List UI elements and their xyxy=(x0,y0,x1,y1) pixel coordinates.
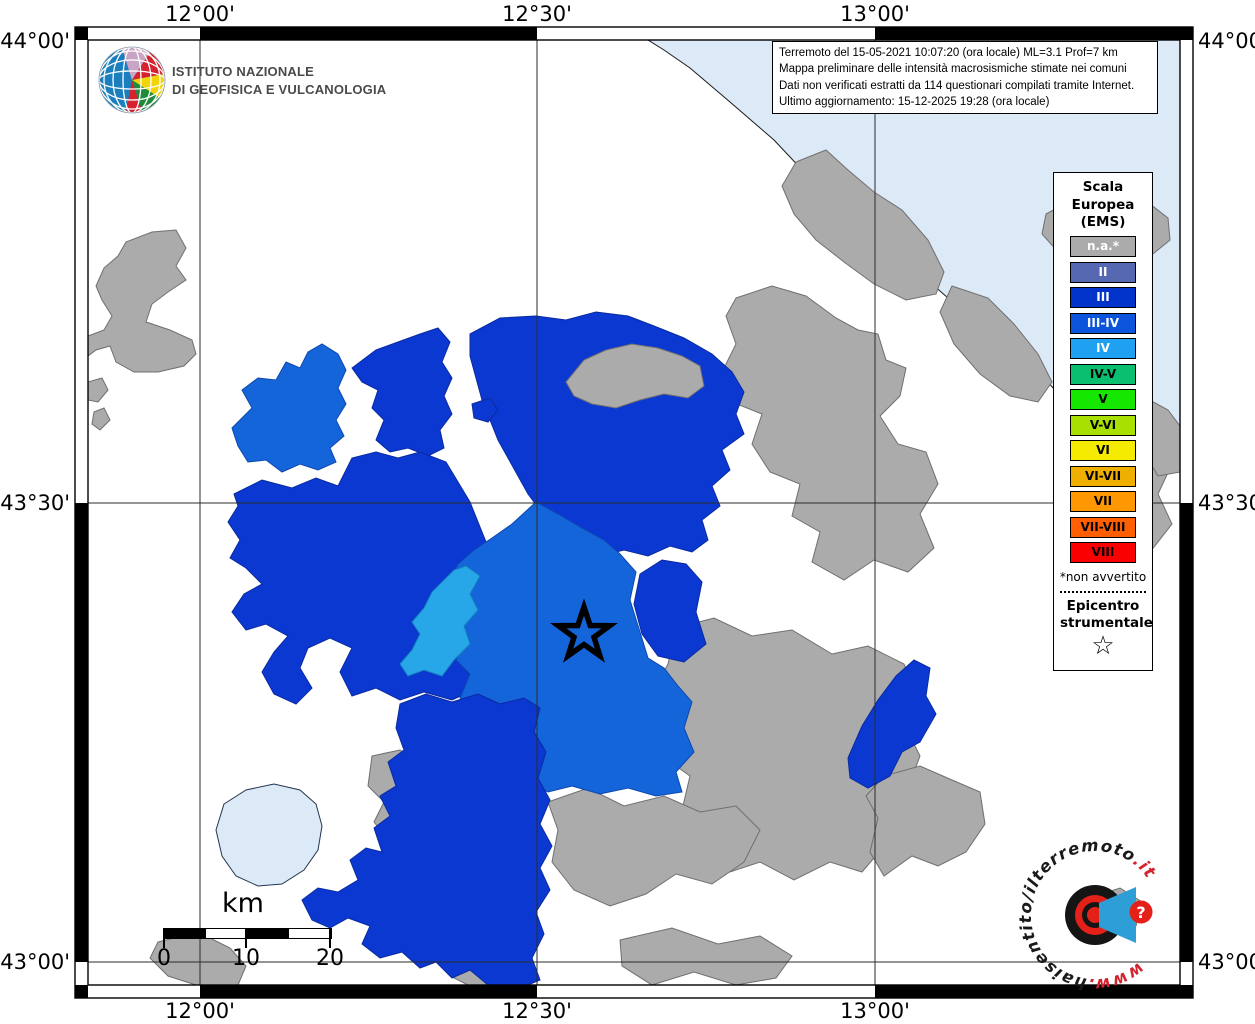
legend-swatch-IV-V: IV-V xyxy=(1070,364,1136,385)
legend-epicenter-section: Epicentro strumentale ☆ xyxy=(1060,591,1146,662)
axis-label-top-2: 12°30' xyxy=(502,2,572,26)
region-gray-right-big xyxy=(722,286,938,580)
axis-label-bottom-2: 12°30' xyxy=(502,999,572,1023)
region-gray-se xyxy=(866,766,985,876)
axis-label-top-3: 13°00' xyxy=(840,2,910,26)
legend-swatch-VIII: VIII xyxy=(1070,542,1136,563)
event-info-box: Terremoto del 15-05-2021 10:07:20 (ora l… xyxy=(772,41,1158,114)
legend-swatch-V-VI: V-VI xyxy=(1070,415,1136,436)
ingv-name-line2: DI GEOFISICA E VULCANOLOGIA xyxy=(172,81,386,99)
legend-swatch-II: II xyxy=(1070,262,1136,283)
ingv-name: ISTITUTO NAZIONALE DI GEOFISICA E VULCAN… xyxy=(172,63,386,98)
map-regions xyxy=(88,40,1180,985)
legend-swatch-III: III xyxy=(1070,287,1136,308)
legend-swatch-VI: VI xyxy=(1070,440,1136,461)
event-info-line1: Terremoto del 15-05-2021 10:07:20 (ora l… xyxy=(779,45,1151,61)
epicenter-star-icon: ☆ xyxy=(1060,632,1146,662)
legend-swatch-VI-VII: VI-VII xyxy=(1070,466,1136,487)
legend-swatch-VII-VIII: VII-VIII xyxy=(1070,517,1136,538)
axis-label-left-1: 44°00' xyxy=(0,29,70,53)
region-gray-islet-2 xyxy=(92,408,110,430)
region-blue-center-north xyxy=(470,312,744,556)
axis-label-right-3: 43°00' xyxy=(1198,950,1255,974)
legend-items: n.a.*IIIIIIII-IVIVIV-VVV-VIVIVI-VIIVIIVI… xyxy=(1054,236,1152,563)
scalebar-tick-0 xyxy=(163,928,165,948)
scalebar-num-20: 20 xyxy=(316,946,344,971)
legend-swatch-VII: VII xyxy=(1070,491,1136,512)
axis-label-left-3: 43°00' xyxy=(0,950,70,974)
ems-legend: Scala Europea (EMS) n.a.*IIIIIIII-IVIVIV… xyxy=(1053,172,1153,671)
scalebar xyxy=(163,928,332,939)
question-mark: ? xyxy=(1136,903,1145,922)
legend-swatch-n.a.*: n.a.* xyxy=(1070,236,1136,257)
region-blue-south-big xyxy=(302,694,552,985)
region-blue-tall-nw xyxy=(352,328,452,456)
region-medblue-nw xyxy=(232,344,346,472)
scalebar-num-10: 10 xyxy=(232,946,260,971)
legend-swatch-V: V xyxy=(1070,389,1136,410)
region-lake-trasimeno xyxy=(216,784,322,886)
region-gray-south-low xyxy=(620,928,792,985)
legend-swatch-III-IV: III-IV xyxy=(1070,313,1136,334)
scalebar-num-0: 0 xyxy=(157,946,171,971)
axis-label-top-1: 12°00' xyxy=(165,2,235,26)
axis-label-right-2: 43°30' xyxy=(1198,491,1255,515)
legend-footnote: *non avvertito xyxy=(1054,570,1152,584)
region-gray-nw xyxy=(88,230,196,372)
ingv-name-line1: ISTITUTO NAZIONALE xyxy=(172,63,386,81)
event-info-line3: Dati non verificati estratti da 114 ques… xyxy=(779,78,1151,94)
event-info-line2: Mappa preliminare delle intensità macros… xyxy=(779,61,1151,77)
axis-label-bottom-1: 12°00' xyxy=(165,999,235,1023)
region-gray-islet-1 xyxy=(88,378,108,402)
legend-swatch-IV: IV xyxy=(1070,338,1136,359)
scalebar-tick-20 xyxy=(329,928,331,948)
ingv-globe-icon xyxy=(99,47,165,113)
haisentito-logo: ? www.haisentito/ilterremoto.it xyxy=(1016,836,1160,995)
event-info-line4: Ultimo aggiornamento: 15-12-2025 19:28 (… xyxy=(779,94,1151,110)
legend-title: Scala Europea (EMS) xyxy=(1054,179,1152,232)
map-page: ? www.haisentito/ilterremoto.it 12°00' 1… xyxy=(0,0,1255,1024)
axis-label-bottom-3: 13°00' xyxy=(840,999,910,1023)
scalebar-tick-10 xyxy=(245,928,247,948)
scalebar-unit: km xyxy=(222,888,264,919)
axis-label-left-2: 43°30' xyxy=(0,491,70,515)
axis-label-right-1: 44°00' xyxy=(1198,29,1255,53)
